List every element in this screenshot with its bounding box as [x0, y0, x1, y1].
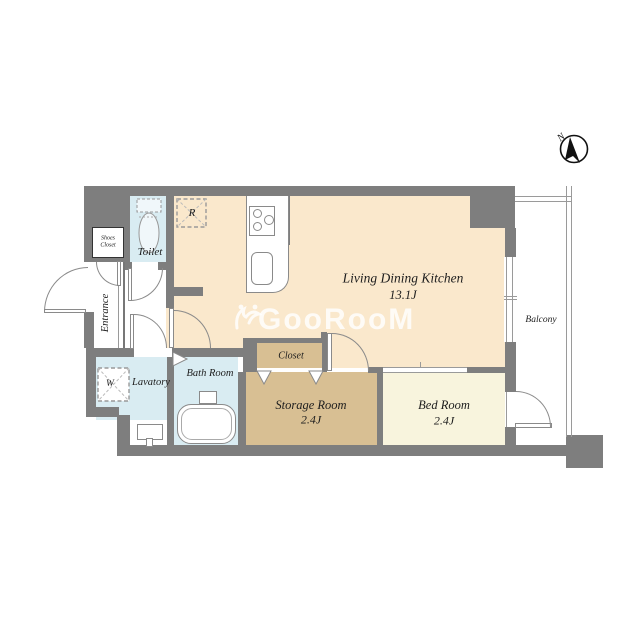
shoes-closet-label: Shoes Closet [94, 235, 122, 248]
stove-burner [264, 215, 274, 225]
floor-plan: R W Shoes Closet [0, 0, 640, 640]
kitchen-sink [251, 252, 273, 285]
bath-faucet [199, 391, 217, 404]
entry-door-arc [44, 267, 88, 312]
ldk-window-tick [504, 299, 517, 300]
wall-top [84, 186, 515, 196]
bedroom-label: Bed Room [418, 399, 470, 413]
toilet-label: Toilet [138, 246, 163, 258]
bath-label: Bath Room [187, 368, 234, 380]
balcony-railing [566, 186, 567, 437]
bedroom-partition-tick [420, 362, 421, 368]
lavatory-door-arc [134, 314, 167, 348]
wall-corner-block [566, 435, 603, 468]
wall-segment [470, 196, 515, 228]
ldk-label: Living Dining Kitchen [343, 272, 464, 287]
room-ldk [470, 228, 505, 348]
closet-label: Closet [278, 351, 304, 362]
wall-stub [166, 287, 203, 296]
toilet-door-arc [130, 268, 163, 301]
balcony-railing [515, 201, 572, 202]
bedroom-partition-line [383, 372, 467, 373]
stove-burner [253, 209, 262, 218]
entrance-label: Entrance [100, 294, 112, 333]
ldk-size: 13.1J [389, 289, 416, 303]
balcony-railing [571, 186, 572, 437]
wall-bedroom-top [467, 367, 505, 373]
refrigerator-label: R [189, 207, 196, 219]
wall-right [505, 228, 516, 257]
wall-right [505, 427, 516, 447]
lavatory-sink-faucet [146, 438, 153, 447]
wall-storage-bedroom [377, 373, 383, 446]
bedroom-size: 2.4J [434, 414, 454, 427]
wall-bath-right [238, 372, 246, 446]
washer-label: W [106, 379, 114, 389]
wall-bottom [117, 445, 568, 456]
wall-left [84, 312, 94, 348]
compass-north-icon: N [548, 116, 602, 174]
balcony-door-arc [516, 391, 551, 427]
closet-folding-door-icon [308, 370, 324, 385]
closet-folding-door-icon [256, 370, 272, 385]
storage-size: 2.4J [301, 413, 321, 426]
wall-right [505, 342, 516, 392]
balcony-door-line [506, 392, 507, 427]
shoes-closet-door-arc [96, 262, 120, 286]
balcony-railing [515, 196, 572, 197]
lavatory-label: Lavatory [132, 377, 170, 389]
wall-step [117, 415, 130, 446]
bathtub [177, 404, 236, 444]
ldk-window-tick [504, 296, 517, 297]
balcony-label: Balcony [525, 315, 556, 325]
wall-lavatory-top [96, 348, 134, 357]
wall-step [86, 407, 119, 417]
wall-lav-bath [167, 357, 174, 446]
storage-label: Storage Room [275, 399, 346, 413]
bedroom-partition-line [383, 367, 467, 368]
bathtub-inner [181, 408, 232, 440]
stove-burner [253, 222, 262, 231]
entrance-step-line [123, 262, 125, 348]
bath-door-icon [172, 351, 189, 368]
